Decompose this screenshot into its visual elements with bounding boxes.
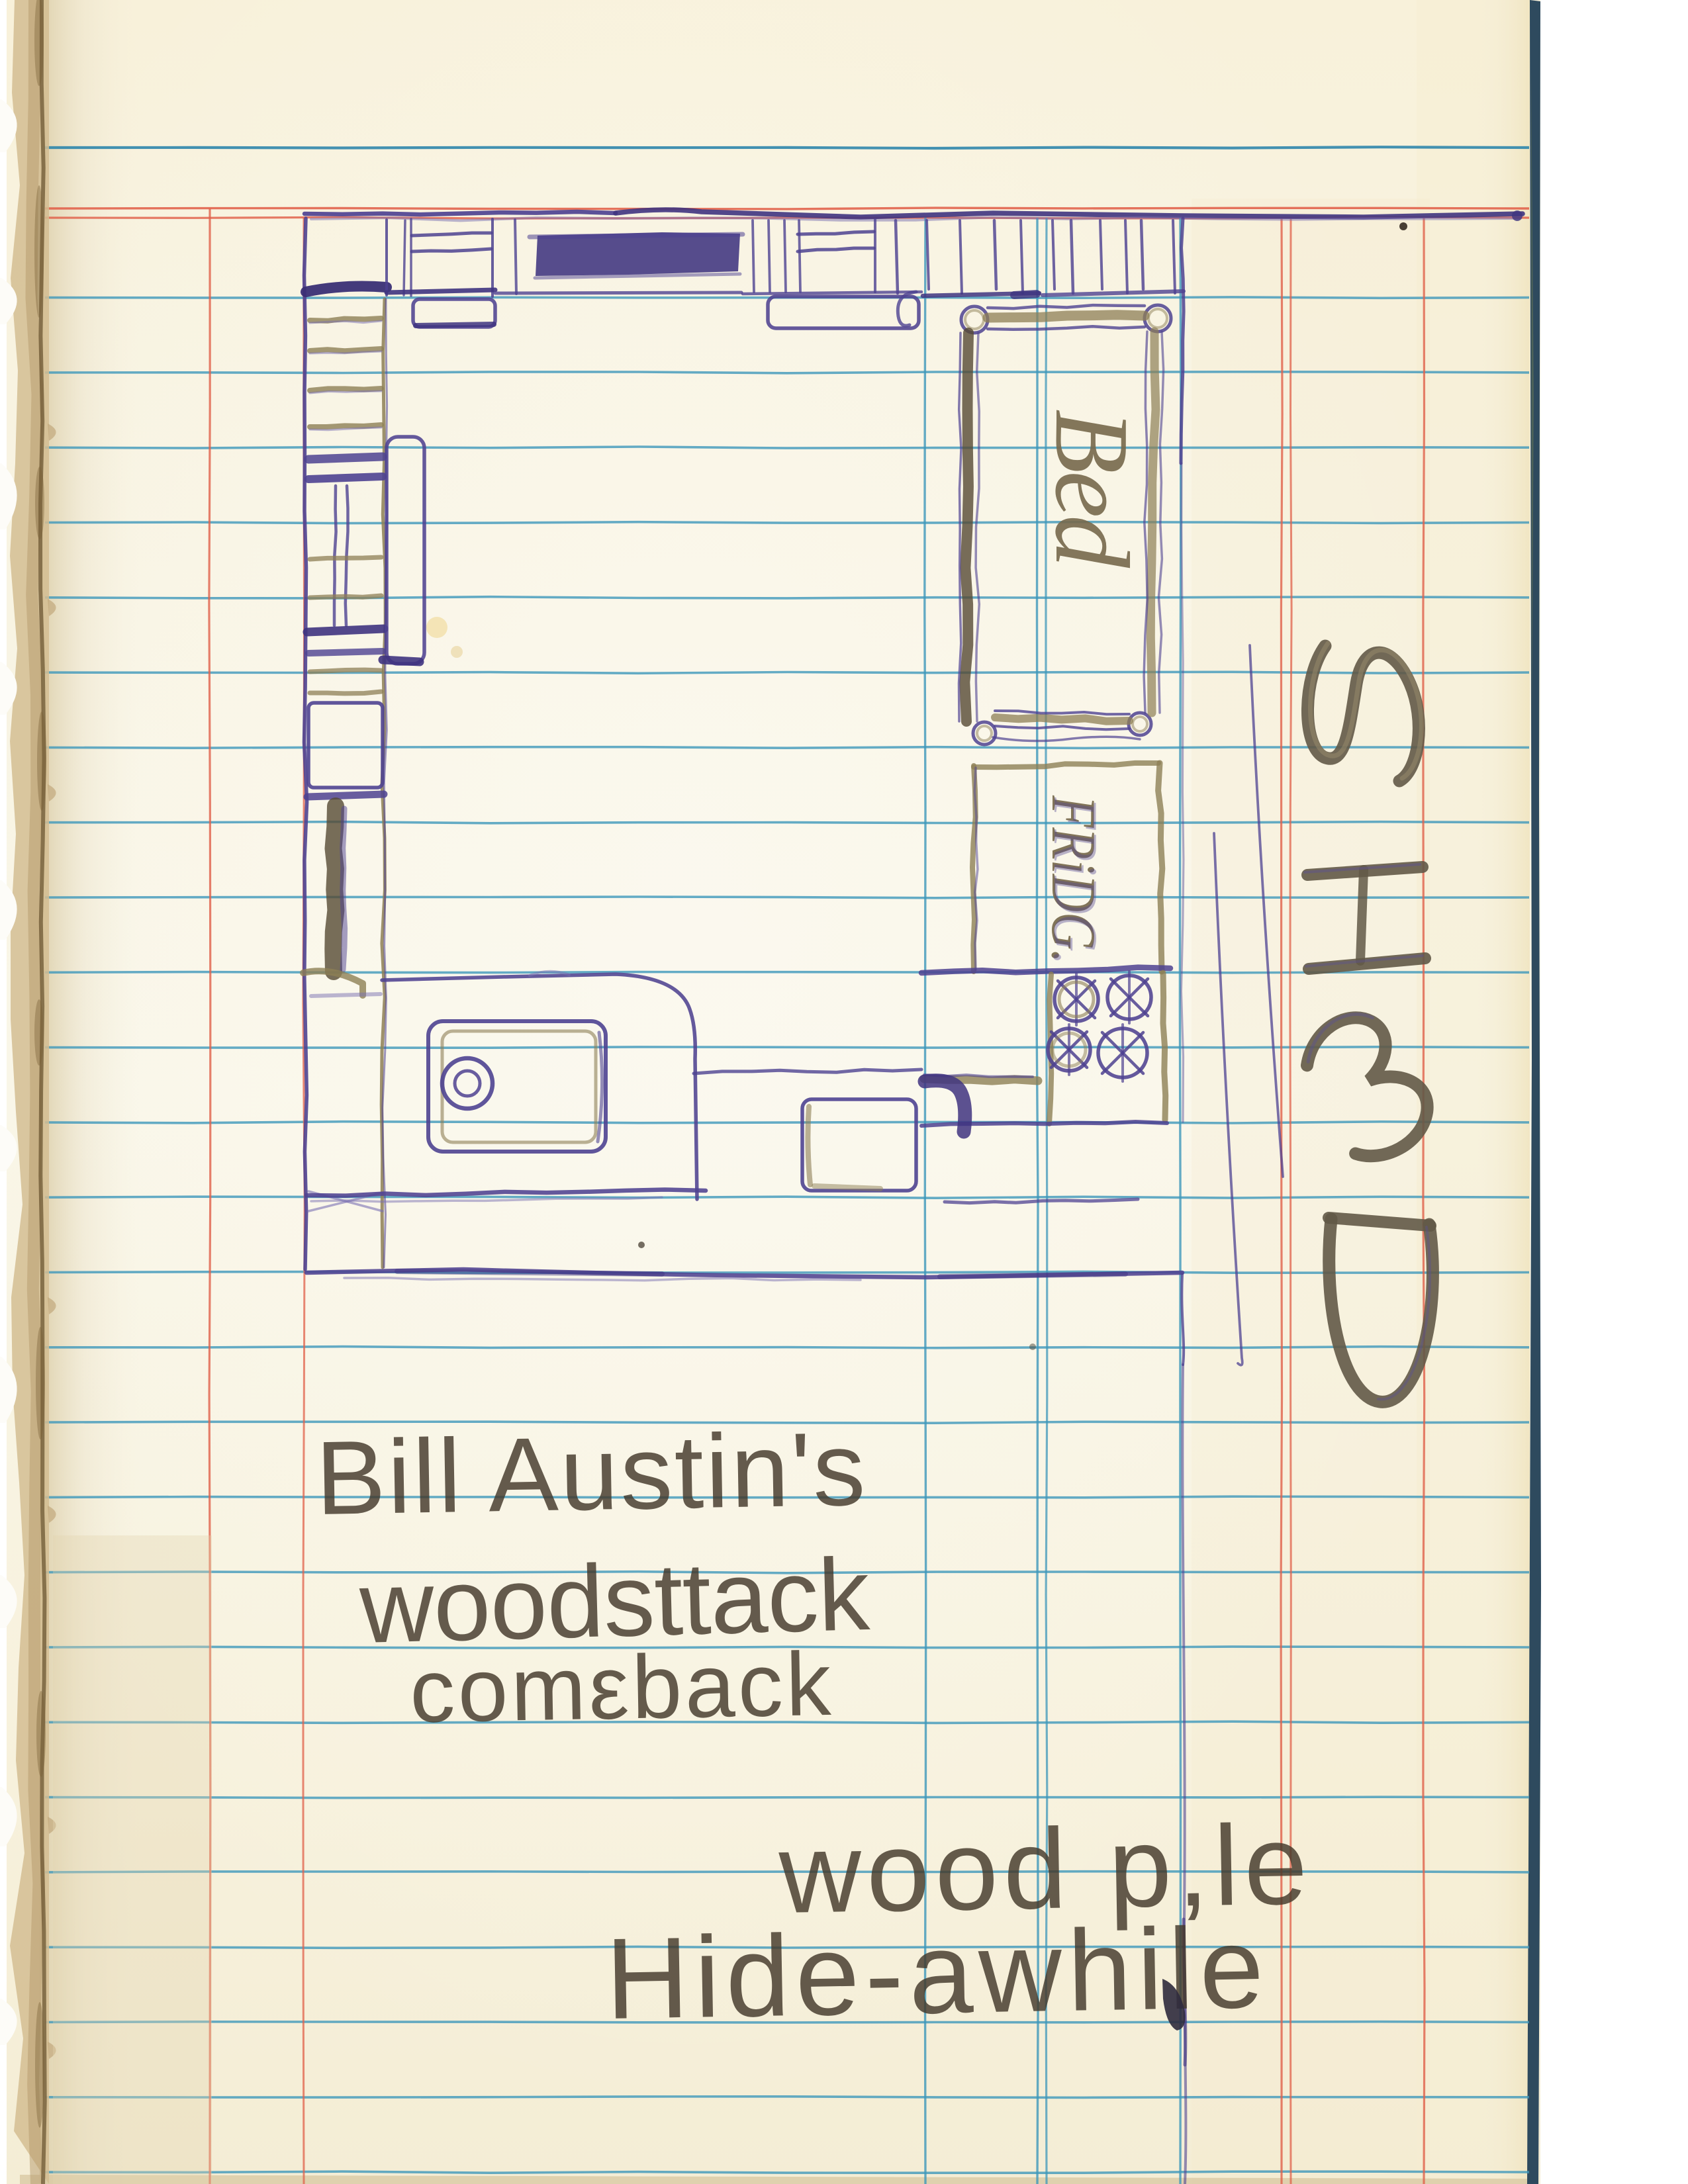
svg-text:comεback: comεback	[409, 1633, 833, 1741]
svg-text:Bed: Bed	[1033, 409, 1151, 569]
svg-text:Bill Austin's: Bill Austin's	[315, 1411, 867, 1537]
svg-text:FRiDG.: FRiDG.	[1041, 797, 1111, 965]
